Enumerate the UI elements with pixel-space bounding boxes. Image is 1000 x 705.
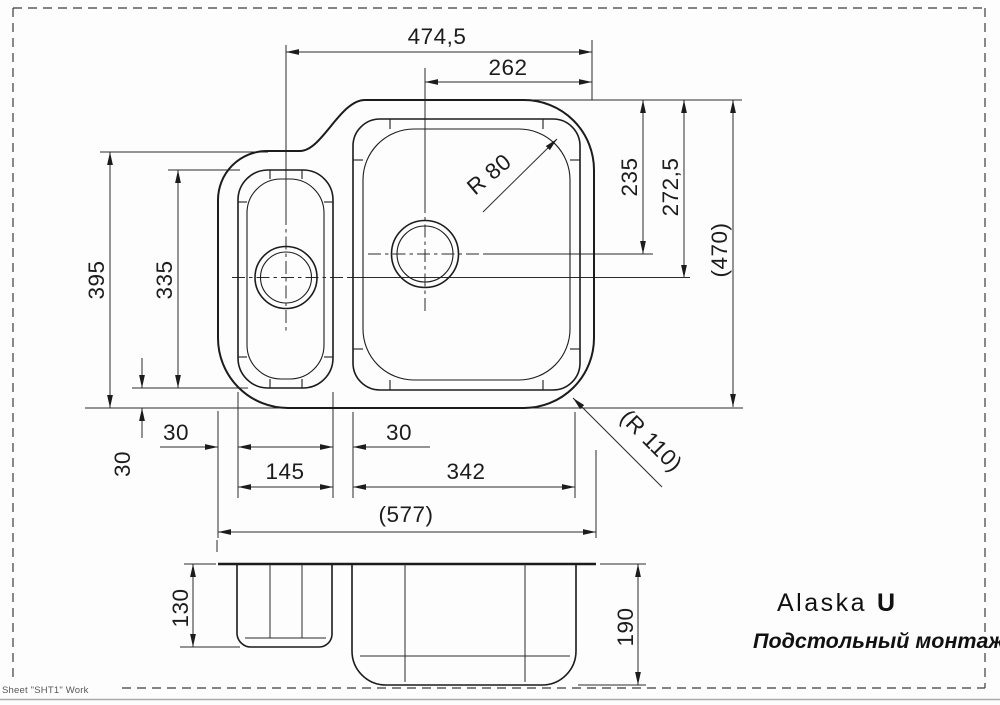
dim-small-bowl-width: 145	[265, 459, 304, 484]
dim-overall-width: (577)	[378, 502, 433, 527]
dim-large-bowl-depth: 190	[613, 607, 638, 646]
dim-small-drain-depth: 272,5	[658, 158, 683, 217]
sheet-label: Sheet "SHT1" Work	[2, 685, 89, 696]
dim-large-drain-depth: 235	[617, 157, 642, 196]
drawing-sheet: 474,5 262 395 335 R 80 235 272,5 (470) 3…	[0, 0, 1000, 705]
dim-bowl-corner-radius: R 80	[462, 149, 516, 200]
section-large-bowl-inner	[360, 564, 570, 682]
product-title: AlaskaU	[777, 589, 896, 617]
dim-overall-depth: (470)	[707, 222, 732, 277]
dim-bowl-gap: 30	[386, 420, 412, 445]
dim-outer-corner-radius: (R 110)	[615, 405, 687, 477]
dimension-lines	[110, 52, 733, 685]
section-large-bowl	[352, 564, 576, 685]
mounting-type-label: Подстольный монтаж	[753, 629, 1000, 653]
section-small-bowl	[237, 564, 332, 647]
sink-section-view	[218, 564, 596, 685]
technical-drawing: 474,5 262 395 335 R 80 235 272,5 (470) 3…	[0, 0, 1000, 705]
extension-lines	[85, 40, 743, 685]
dim-bottom-offset: 30	[110, 451, 135, 477]
product-name: Alaska	[777, 589, 867, 617]
dim-top-width: 474,5	[408, 24, 467, 49]
dim-drain-offset: 262	[488, 55, 527, 80]
dim-large-bowl-width: 342	[446, 459, 485, 484]
section-small-bowl-inner	[245, 564, 326, 638]
center-lines	[232, 200, 485, 333]
dim-small-bowl-depth: 130	[168, 588, 193, 627]
dim-left-height: 395	[84, 260, 109, 299]
dim-left-edge-gap: 30	[163, 420, 189, 445]
dim-small-bowl-height: 335	[152, 260, 177, 299]
product-variant: U	[877, 589, 896, 617]
